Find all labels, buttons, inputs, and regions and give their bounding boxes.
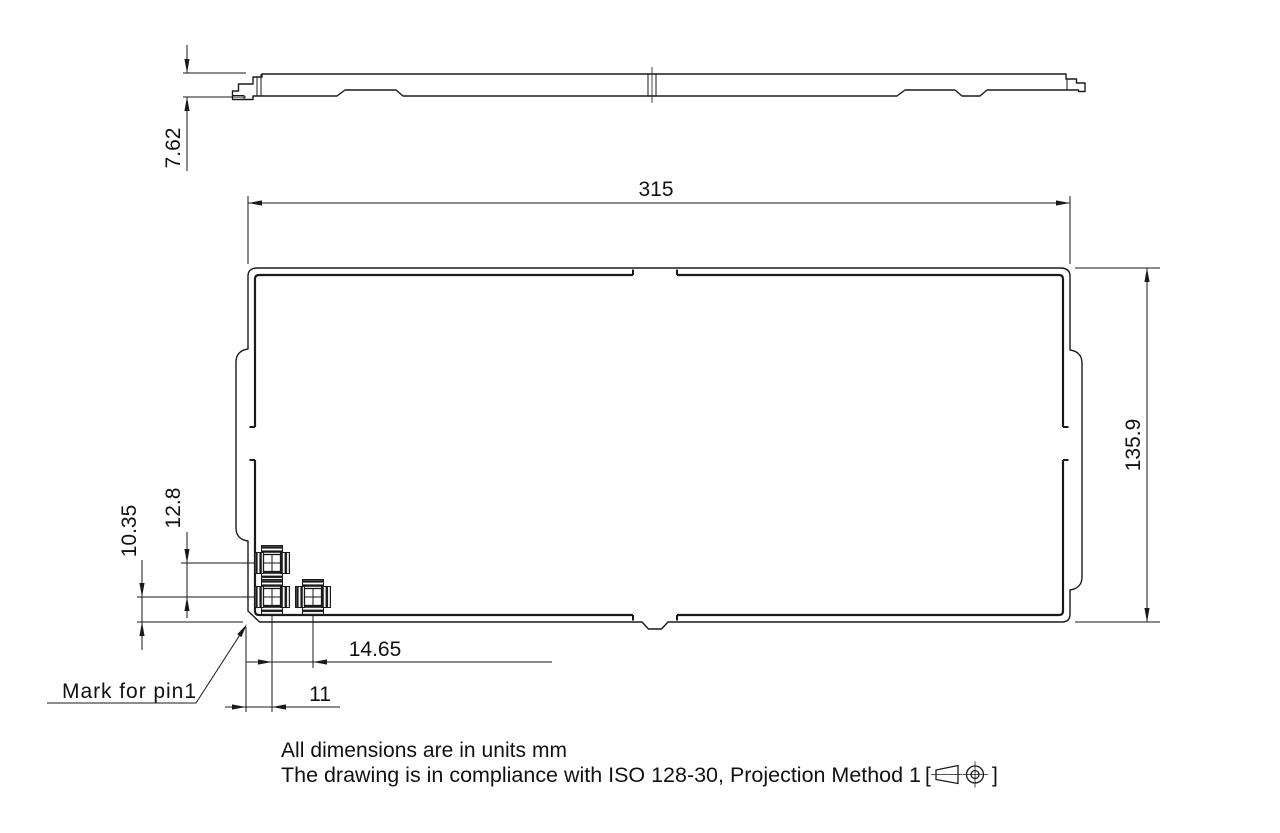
pin3-mark-symbol [296,580,331,615]
first-angle-projection-icon [931,762,988,788]
panel-inner-lip-ticks [250,270,1069,621]
dimension-pin-left-offset: 11 [225,627,340,712]
dim-text-7-62: 7.62 [162,128,185,169]
dim-text-14-65: 14.65 [349,638,402,661]
dimension-pin-vertical-pitch: 12.8 [162,488,270,618]
side-profile-view [233,67,1086,103]
projection-bracket-open: [ [925,764,931,787]
dim-text-11: 11 [309,683,331,706]
profile-outline [233,74,1086,100]
dimension-overall-height: 135.9 [1075,268,1160,622]
engineering-drawing-canvas: 7.62 315 135.9 12.8 10.35 14.6 [0,0,1280,833]
projection-bracket-close: ] [992,764,998,787]
dim-text-10-35: 10.35 [118,505,141,558]
dim-text-315: 315 [638,178,673,201]
note-compliance: The drawing is in compliance with ISO 12… [281,764,921,787]
notes-block: All dimensions are in units mm The drawi… [281,739,998,788]
panel-inner-outline [255,275,1063,615]
panel-outer-outline [236,268,1082,629]
dim-text-12-8: 12.8 [162,488,185,529]
front-view [236,268,1082,629]
drawing-svg: 7.62 315 135.9 12.8 10.35 14.6 [0,0,1280,833]
dimension-pin-horizontal-pitch: 14.65 [246,600,552,712]
pin1-mark-symbol [255,546,290,581]
dimension-pin-bottom-offset: 10.35 [118,505,270,650]
pin1-mark-callout: Mark for pin1 [47,624,247,703]
pin2-mark-symbol [255,580,290,615]
dim-text-135-9: 135.9 [1122,419,1145,472]
note-units: All dimensions are in units mm [281,739,567,762]
dimension-overall-width: 315 [248,178,1070,264]
pin1-mark-label: Mark for pin1 [62,680,196,703]
dimension-profile-thickness: 7.62 [162,45,246,171]
